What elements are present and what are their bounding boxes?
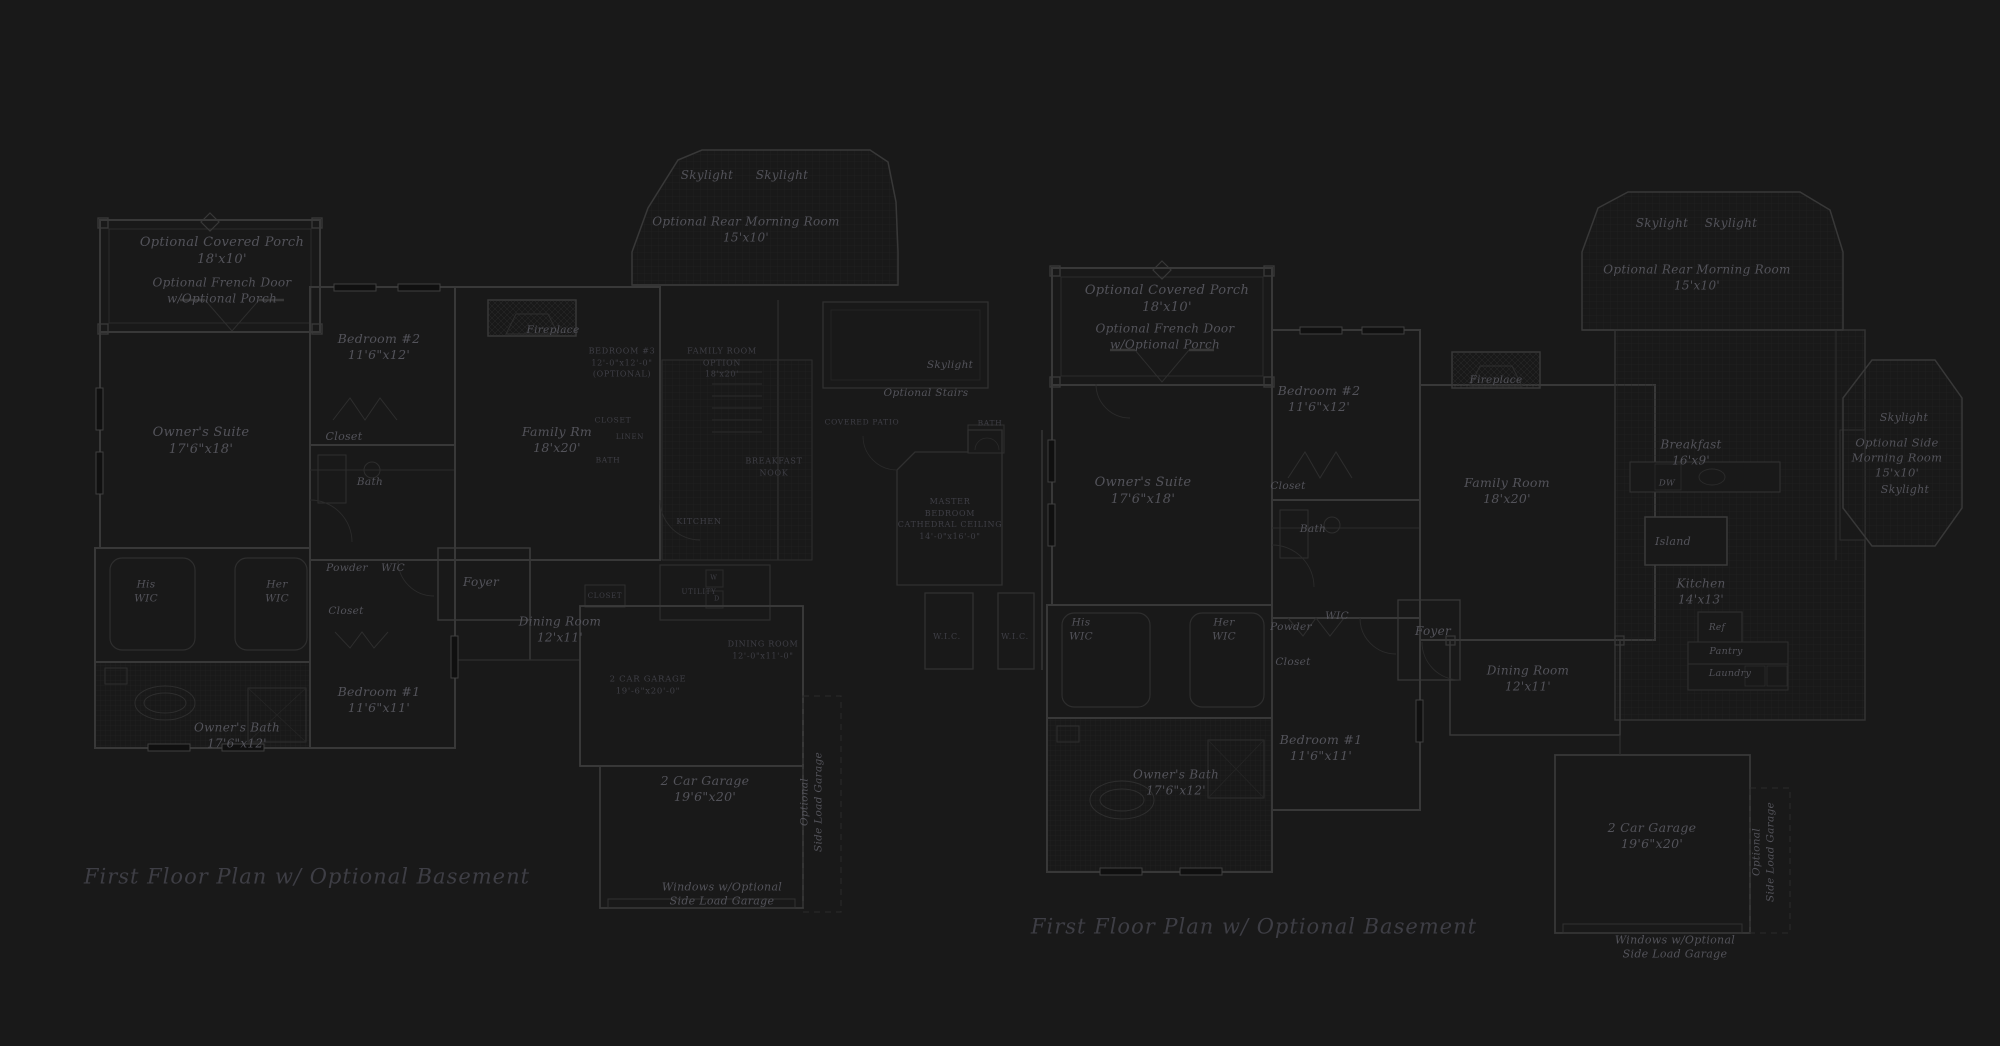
label-skylight-1: Skylight [681, 168, 734, 184]
label-bath: Bath [1300, 523, 1326, 537]
label-bedroom-1: Bedroom #1 11'6"x11' [1280, 732, 1363, 765]
label-windows-optional: Windows w/Optional Side Load Garage [1615, 934, 1735, 963]
label-island: Island [1655, 535, 1691, 549]
label-closet-option: CLOSET [595, 416, 632, 427]
label-linen: LINEN [616, 432, 644, 442]
label-bedroom-2: Bedroom #2 11'6"x12' [338, 331, 421, 364]
label-windows-optional: Windows w/Optional Side Load Garage [662, 881, 782, 910]
label-kitchen-caps: KITCHEN [676, 516, 721, 528]
label-bedroom-2: Bedroom #2 11'6"x12' [1278, 383, 1361, 416]
label-closet-hall: Closet [328, 605, 363, 619]
label-covered-patio: COVERED PATIO [825, 418, 900, 429]
label-his-wic: His WIC [134, 578, 158, 605]
label-family-rm: Family Rm 18'x20' [522, 424, 592, 457]
label-her-wic: Her WIC [265, 578, 289, 605]
label-skylight-1: Skylight [1636, 216, 1689, 232]
label-layer: First Floor Plan w/ Optional Basement Fi… [0, 0, 2000, 1046]
label-bath: Bath [357, 476, 383, 490]
label-skylight-side-2: Skylight [1881, 483, 1929, 497]
label-closet-foyer: CLOSET [588, 591, 623, 601]
floor-plan-sheet: First Floor Plan w/ Optional Basement Fi… [0, 0, 2000, 1046]
right-plan-title: First Floor Plan w/ Optional Basement [1031, 913, 1477, 940]
label-dw: DW [1659, 478, 1675, 489]
label-breakfast-nook: BREAKFAST NOOK [745, 455, 802, 478]
label-skylight-center: Skylight [927, 359, 973, 373]
label-master-bedroom-option: MASTER BEDROOM CATHEDRAL CEILING 14'-0"x… [898, 496, 1003, 542]
label-breakfast: Breakfast 16'x9' [1660, 437, 1721, 468]
label-wic: WIC [1325, 610, 1349, 624]
label-optional-covered-porch: Optional Covered Porch 18'x10' [140, 235, 304, 269]
label-kitchen: Kitchen 14'x13' [1676, 576, 1725, 607]
label-2-car-garage: 2 Car Garage 19'6"x20' [1608, 820, 1697, 853]
left-plan-title: First Floor Plan w/ Optional Basement [84, 863, 530, 890]
label-fireplace: Fireplace [1469, 374, 1522, 388]
label-dining-room: Dining Room 12'x11' [519, 614, 601, 645]
label-powder: Powder [326, 562, 368, 576]
label-optional-rear-morning-room: Optional Rear Morning Room 15'x10' [652, 214, 839, 245]
label-owners-bath: Owner's Bath 17'6"x12' [194, 720, 280, 751]
label-dining-room-option: DINING ROOM 12'-0"x11'-0" [728, 638, 799, 661]
label-foyer: Foyer [1415, 624, 1451, 640]
label-optional-side-load-garage: Optional Side Load Garage [1750, 802, 1777, 902]
label-laundry: Laundry [1709, 668, 1751, 680]
label-family-room-option: FAMILY ROOM OPTION 18'x20' [687, 346, 757, 381]
label-bedroom-3-option: BEDROOM #3 12'-0"x12'-0" (OPTIONAL) [589, 346, 656, 381]
label-optional-rear-morning-room: Optional Rear Morning Room 15'x10' [1603, 262, 1790, 293]
label-family-room: Family Room 18'x20' [1464, 475, 1550, 508]
label-optional-side-morning-room: Optional Side Morning Room 15'x10' [1852, 436, 1943, 481]
label-wic: WIC [381, 562, 405, 576]
label-bedroom-1: Bedroom #1 11'6"x11' [338, 684, 421, 717]
label-owners-suite: Owner's Suite 17'6"x18' [153, 425, 250, 459]
label-optional-stairs: Optional Stairs [884, 387, 969, 401]
label-master-bath-option: BATH [978, 419, 1003, 430]
label-pantry: Pantry [1709, 646, 1742, 658]
label-skylight-2: Skylight [756, 168, 809, 184]
label-closet-hall: Closet [1275, 656, 1310, 670]
label-her-wic: Her WIC [1212, 616, 1236, 643]
label-dryer: D [714, 594, 720, 603]
label-ref: Ref [1709, 623, 1725, 635]
label-skylight-2: Skylight [1705, 216, 1758, 232]
label-foyer: Foyer [463, 575, 499, 591]
label-skylight-side-1: Skylight [1880, 411, 1928, 425]
label-fireplace: Fireplace [526, 324, 579, 338]
label-garage-option: 2 CAR GARAGE 19'-6"x20'-0" [610, 674, 687, 699]
label-optional-french-door: Optional French Door w/Optional Porch [153, 275, 292, 306]
label-powder: Powder [1270, 621, 1312, 635]
label-washer: W [710, 573, 717, 582]
label-owners-suite: Owner's Suite 17'6"x18' [1095, 475, 1192, 509]
label-closet-bedroom-2: Closet [326, 430, 363, 444]
label-owners-bath: Owner's Bath 17'6"x12' [1133, 767, 1219, 798]
label-utility: UTILITY [682, 587, 717, 597]
label-optional-french-door: Optional French Door w/Optional Porch [1096, 321, 1235, 352]
label-his-wic: His WIC [1069, 616, 1093, 643]
label-optional-covered-porch: Optional Covered Porch 18'x10' [1085, 283, 1249, 317]
label-dining-room: Dining Room 12'x11' [1487, 663, 1569, 694]
label-wic-option-1: W.I.C. [933, 631, 961, 643]
label-closet-bedroom-2: Closet [1270, 480, 1305, 494]
label-2-car-garage: 2 Car Garage 19'6"x20' [661, 773, 750, 806]
label-optional-side-load-garage: Optional Side Load Garage [798, 752, 825, 852]
label-bath-option: BATH [596, 456, 621, 467]
label-wic-option-2: W.I.C. [1001, 631, 1029, 643]
